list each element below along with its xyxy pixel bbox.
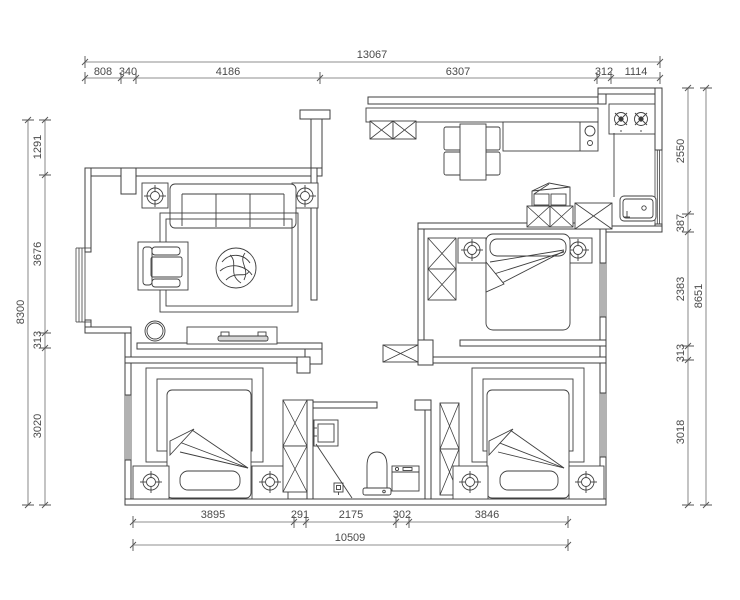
wardrobe xyxy=(283,400,307,492)
dim-top-seg: 1114 xyxy=(625,66,648,78)
wall-master-left xyxy=(418,226,424,340)
dim-left-total: 8300 xyxy=(15,300,27,324)
dim-right-total: 8651 xyxy=(693,284,705,308)
dim-left-seg: 3020 xyxy=(32,414,44,438)
wall-bath-right xyxy=(425,410,431,499)
dim-right-seg: 2383 xyxy=(675,277,687,301)
dim-right-seg: 3018 xyxy=(675,420,687,444)
dimension-left: 8300 1291 3676 313 3020 xyxy=(15,117,51,508)
kitchen-cabinets xyxy=(527,203,612,229)
dim-top-seg: 340 xyxy=(119,66,137,78)
nightstand xyxy=(569,466,604,499)
wall-jog-bottomleft xyxy=(125,333,131,357)
dining-set xyxy=(444,124,500,180)
washing-machine xyxy=(392,466,419,491)
tv-icon xyxy=(218,336,268,341)
wall-kitchen-step xyxy=(606,226,662,232)
wall-entry-side xyxy=(311,119,322,168)
bathroom-fixtures xyxy=(314,420,419,498)
window-bedroom3 xyxy=(600,393,606,457)
wall-kitchen-top xyxy=(368,97,598,104)
wall-right xyxy=(600,317,606,393)
living-room-furniture xyxy=(138,183,318,344)
wall-pier xyxy=(415,400,431,410)
nightstand xyxy=(133,466,169,499)
dim-left-seg: 1291 xyxy=(32,135,44,159)
toilet-icon xyxy=(363,452,391,495)
counter-sink-unit xyxy=(503,122,598,151)
wall-entry-top xyxy=(300,110,330,119)
dim-top-seg: 6307 xyxy=(446,66,470,78)
wall-pier xyxy=(418,340,433,365)
wardrobe xyxy=(428,238,456,300)
small-appliance xyxy=(532,183,570,206)
window-master xyxy=(600,263,606,317)
bed3 xyxy=(487,390,569,498)
pillow xyxy=(490,239,566,256)
floor-drain-icon xyxy=(334,483,343,495)
mirror-cabinet xyxy=(314,420,338,446)
floor-plan-page: 13067 808 340 4186 6307 312 1114 3895 29… xyxy=(0,0,740,600)
coffee-table xyxy=(216,248,256,288)
wall-column xyxy=(121,168,136,194)
sofa xyxy=(170,184,296,228)
dim-top-seg: 312 xyxy=(595,66,613,78)
wall-pier xyxy=(297,357,310,373)
nightstand xyxy=(453,466,488,499)
wall-jog-bottomleft xyxy=(85,327,131,333)
master-bedroom-furniture xyxy=(428,234,592,330)
wall-topright xyxy=(598,88,662,94)
wall-living-left xyxy=(85,168,91,252)
pillow xyxy=(500,471,558,490)
wall-bedroom2-left xyxy=(125,460,131,499)
wall-master-bottom xyxy=(460,340,606,346)
floor-plan-canvas: 13067 808 340 4186 6307 312 1114 3895 29… xyxy=(0,0,740,600)
dim-right-seg: 313 xyxy=(675,344,687,362)
dim-bottom-seg: 2175 xyxy=(339,509,363,521)
dim-bottom-seg: 3846 xyxy=(475,509,499,521)
dimension-top: 13067 808 340 4186 6307 312 1114 xyxy=(82,49,663,84)
wall-bedroom3-top xyxy=(431,357,606,363)
bay-window-living xyxy=(76,248,91,322)
tv-foot xyxy=(221,332,229,336)
wall-kitchen-right xyxy=(655,88,662,150)
foyer-cabinet xyxy=(370,121,416,139)
armchair xyxy=(138,242,188,290)
wall-bedroom2-top xyxy=(125,357,297,363)
dim-top-total: 13067 xyxy=(357,49,388,61)
kitchen-sink xyxy=(620,196,656,221)
bedroom3-furniture xyxy=(440,368,604,499)
gas-stove xyxy=(609,104,655,134)
dining-table xyxy=(460,124,486,180)
bedroom2-furniture xyxy=(133,368,307,499)
wall-right xyxy=(600,226,606,263)
pillow xyxy=(180,471,240,490)
dimension-right: 2550 387 2383 313 3018 8651 xyxy=(675,85,712,508)
wall-bath-top xyxy=(313,402,377,408)
dimension-bottom: 3895 291 2175 302 3846 10509 xyxy=(130,509,571,551)
dim-left-seg: 313 xyxy=(32,331,44,349)
tv-cabinet xyxy=(187,327,277,344)
dim-bottom-total: 10509 xyxy=(335,532,366,544)
dim-left-seg: 3676 xyxy=(32,242,44,266)
dim-right-seg: 2550 xyxy=(675,139,687,163)
dim-top-seg: 4186 xyxy=(216,66,240,78)
bed2 xyxy=(167,390,251,498)
wall-bottom xyxy=(125,499,606,505)
dim-bottom-seg: 3895 xyxy=(201,509,225,521)
wall-bath-left xyxy=(307,400,313,499)
bed-master xyxy=(486,234,570,330)
stool xyxy=(145,321,165,341)
counter-top xyxy=(366,108,598,122)
tv-foot xyxy=(258,332,266,336)
window-bedroom2 xyxy=(125,395,131,460)
dim-top-seg: 808 xyxy=(94,66,112,78)
